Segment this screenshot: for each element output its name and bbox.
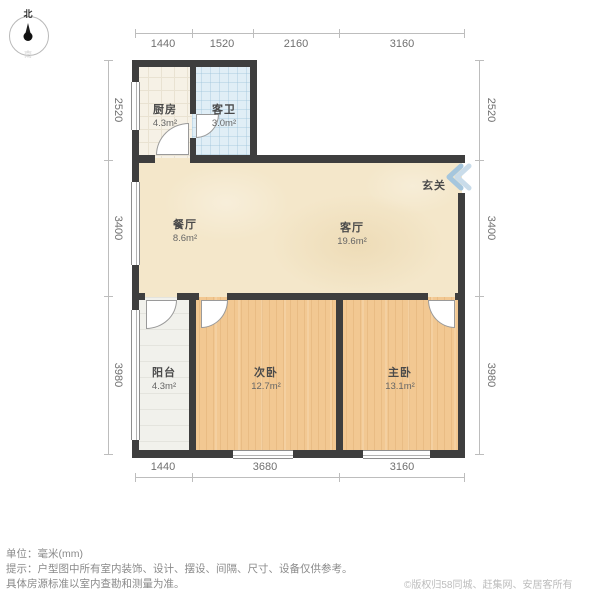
dim-line-top: [135, 33, 465, 34]
dim-line-right: [479, 60, 480, 455]
balcony-window: [131, 310, 140, 440]
dim-left-2520: 2520: [112, 98, 124, 122]
wall: [293, 450, 363, 458]
wall: [458, 193, 465, 458]
kitchen-window: [131, 82, 140, 130]
unit-note: 单位：毫米(mm): [6, 546, 83, 561]
second-bedroom-window: [233, 450, 293, 459]
wall: [132, 60, 139, 82]
copyright-notice: ©版权归58同城、赶集网、安居客所有: [404, 576, 573, 591]
wall: [132, 450, 233, 458]
wall: [132, 440, 139, 458]
wall: [132, 130, 139, 182]
master-bedroom-window: [363, 450, 430, 459]
dim-bottom-1440: 1440: [151, 461, 175, 473]
dim-bottom-3160: 3160: [390, 461, 414, 473]
dim-left-3400: 3400: [112, 216, 124, 240]
compass: 北 南: [6, 6, 50, 60]
room-label-second-bedroom: 次卧 12.7m²: [251, 364, 281, 392]
room-label-balcony: 阳台 4.3m²: [152, 364, 176, 392]
dim-right-3400: 3400: [485, 216, 497, 240]
room-label-kitchen: 厨房 4.3m²: [153, 101, 177, 129]
dim-right-3980: 3980: [485, 363, 497, 387]
dim-top-1440: 1440: [151, 38, 175, 50]
wall: [336, 300, 343, 450]
compass-south-label: 南: [24, 49, 32, 60]
dim-right-2520: 2520: [485, 98, 497, 122]
wall: [227, 293, 428, 300]
dim-left-3980: 3980: [112, 363, 124, 387]
dim-line-left: [108, 60, 109, 455]
wall: [190, 67, 196, 114]
room-label-bathroom: 客卫 3.0m²: [212, 101, 236, 129]
wall: [132, 265, 139, 310]
compass-north-label: 北: [23, 7, 32, 20]
dim-top-3160: 3160: [390, 38, 414, 50]
dim-bottom-3680: 3680: [253, 461, 277, 473]
dim-line-bottom: [135, 477, 465, 478]
room-label-living: 客厅 19.6m²: [337, 219, 367, 247]
wall: [190, 155, 465, 163]
compass-needle-ball: [24, 32, 33, 41]
room-label-dining: 餐厅 8.6m²: [173, 216, 197, 244]
wall: [189, 300, 196, 452]
tip-line-1: 提示：户型图中所有室内装饰、设计、摆设、间隔、尺寸、设备仅供参考。: [6, 561, 353, 576]
dining-window: [131, 182, 140, 265]
dim-top-2160: 2160: [284, 38, 308, 50]
wall: [132, 60, 257, 67]
wall: [177, 293, 199, 300]
room-label-entrance: 玄关: [422, 177, 446, 193]
tip-line-2: 具体房源标准以室内查勘和测量为准。: [6, 576, 185, 591]
dim-top-1520: 1520: [210, 38, 234, 50]
wall: [250, 60, 257, 155]
room-label-master-bedroom: 主卧 13.1m²: [385, 364, 415, 392]
wall: [190, 138, 196, 155]
entrance-arrow-icon: [444, 163, 472, 191]
